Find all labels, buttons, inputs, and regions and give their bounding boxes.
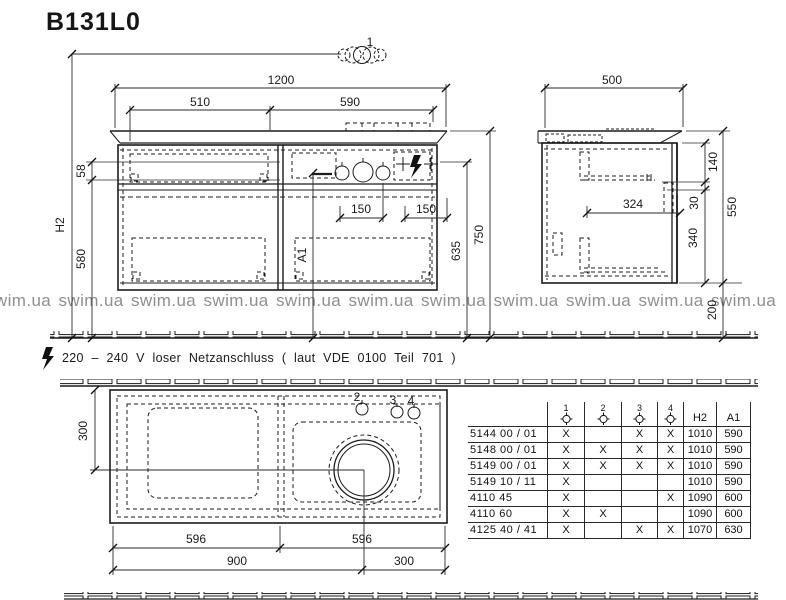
technical-drawing-page: swim.uaswim.uaswim.uaswim.uaswim.uaswim.… [0, 0, 786, 600]
dim-58: 58 [74, 164, 88, 178]
model-cell: 4125 40 / 41 [468, 522, 547, 539]
dim-200: 200 [705, 300, 719, 320]
page-title: B131L0 [46, 8, 141, 37]
table-header-h2: H2 [683, 402, 716, 426]
dim-150-b: 150 [416, 202, 436, 216]
model-cell: 5148 00 / 01 [468, 442, 547, 458]
model-cell: 5149 00 / 01 [468, 458, 547, 474]
bottom-hatch-line [64, 592, 758, 599]
dim-300-b: 300 [394, 554, 414, 568]
tap-hole-icon [560, 412, 573, 425]
hole-mark-cell-1: X [547, 442, 584, 458]
model-cell: 4110 60 [468, 506, 547, 522]
hole-mark-cell-2 [584, 474, 621, 490]
hole-mark-cell-3: X [621, 458, 657, 474]
hole-number: 4 [668, 404, 673, 412]
hole-number: 2 [600, 404, 605, 412]
dim-H2: H2 [53, 217, 67, 233]
dim-hole-2: 2 [354, 390, 361, 404]
table-header-hole-4: 4 [657, 402, 683, 426]
dim-300-depth: 300 [76, 421, 90, 441]
dim-30: 30 [687, 196, 701, 210]
spec-table: 1234H2A15144 00 / 01XXX10105905148 00 / … [468, 402, 751, 539]
hole-mark-cell-2 [584, 490, 621, 506]
tap-hole-icon [597, 412, 610, 425]
tap-hole-icon [664, 412, 677, 425]
dim-1200: 1200 [268, 73, 295, 87]
hole-mark-cell-2 [584, 426, 621, 442]
plan-view-drawing [110, 390, 447, 523]
side-view-drawing [538, 129, 682, 283]
dim-635: 635 [449, 241, 463, 261]
front-view-drawing [110, 123, 447, 290]
h2-value-cell: 1010 [683, 442, 716, 458]
hole-mark-cell-3 [621, 474, 657, 490]
hole-mark-cell-2: X [584, 506, 621, 522]
h2-value-cell: 1010 [683, 426, 716, 442]
h2-value-cell: 1090 [683, 506, 716, 522]
hole-mark-cell-4 [657, 474, 683, 490]
a1-value-cell: 590 [716, 426, 751, 442]
dim-hole-3: 3 [390, 393, 397, 407]
hole-mark-cell-2: X [584, 458, 621, 474]
a1-value-cell: 630 [716, 522, 751, 539]
dim-750: 750 [472, 225, 486, 245]
hole-mark-cell-3: X [621, 522, 657, 539]
hole-mark-cell-2 [584, 522, 621, 539]
lightning-icon [410, 155, 422, 178]
hole-number: 3 [637, 404, 642, 412]
table-header-hole-2: 2 [584, 402, 621, 426]
dim-510: 510 [190, 95, 210, 109]
dim-hole-4: 4 [408, 394, 415, 408]
a1-value-cell: 590 [716, 458, 751, 474]
dim-596-a: 596 [186, 532, 206, 546]
lightning-icon [42, 347, 54, 370]
dim-A1: A1 [295, 247, 309, 262]
model-cell: 5149 10 / 11 [468, 474, 547, 490]
hole-mark-cell-1: X [547, 506, 584, 522]
hole-mark-cell-1: X [547, 522, 584, 539]
dim-596-b: 596 [352, 532, 372, 546]
dim-900: 900 [227, 554, 247, 568]
dim-580: 580 [74, 249, 88, 269]
h2-value-cell: 1010 [683, 458, 716, 474]
hole-mark-cell-1: X [547, 426, 584, 442]
dim-500: 500 [602, 73, 622, 87]
table-header-hole-3: 3 [621, 402, 657, 426]
electrical-note: 220 – 240 V loser Netzanschluss ( laut V… [42, 347, 456, 370]
a1-value-cell: 590 [716, 442, 751, 458]
wall-hatch-line [60, 379, 758, 386]
hole-number: 1 [563, 404, 568, 412]
model-cell: 5144 00 / 01 [468, 426, 547, 442]
a1-value-cell: 600 [716, 490, 751, 506]
dim-324: 324 [623, 197, 643, 211]
model-cell: 4110 45 [468, 490, 547, 506]
tap-hole-icon [633, 412, 646, 425]
table-header-model [468, 402, 547, 426]
dim-tap-1: 1 [367, 35, 374, 49]
dim-140: 140 [706, 152, 720, 172]
hole-mark-cell-4: X [657, 522, 683, 539]
hole-mark-cell-4: X [657, 458, 683, 474]
h2-value-cell: 1090 [683, 490, 716, 506]
hole-mark-cell-4: X [657, 426, 683, 442]
hole-mark-cell-4: X [657, 490, 683, 506]
hole-mark-cell-3: X [621, 442, 657, 458]
hole-mark-cell-3: X [621, 426, 657, 442]
hole-mark-cell-4 [657, 506, 683, 522]
a1-value-cell: 600 [716, 506, 751, 522]
dim-340: 340 [686, 228, 700, 248]
hole-mark-cell-1: X [547, 474, 584, 490]
h2-value-cell: 1070 [683, 522, 716, 539]
hole-mark-cell-4: X [657, 442, 683, 458]
hole-mark-cell-3 [621, 506, 657, 522]
h2-value-cell: 1010 [683, 474, 716, 490]
table-header-a1: A1 [716, 402, 751, 426]
hole-mark-cell-2: X [584, 442, 621, 458]
tap-hole-symbol [338, 47, 386, 64]
hole-mark-cell-1: X [547, 490, 584, 506]
floor-hatch-line [50, 331, 758, 338]
table-header-hole-1: 1 [547, 402, 584, 426]
note-text: 220 – 240 V loser Netzanschluss ( laut V… [62, 351, 456, 365]
dim-150-a: 150 [351, 202, 371, 216]
hole-mark-cell-3 [621, 490, 657, 506]
dim-550: 550 [725, 197, 739, 217]
a1-value-cell: 590 [716, 474, 751, 490]
hole-mark-cell-1: X [547, 458, 584, 474]
dim-590: 590 [340, 95, 360, 109]
